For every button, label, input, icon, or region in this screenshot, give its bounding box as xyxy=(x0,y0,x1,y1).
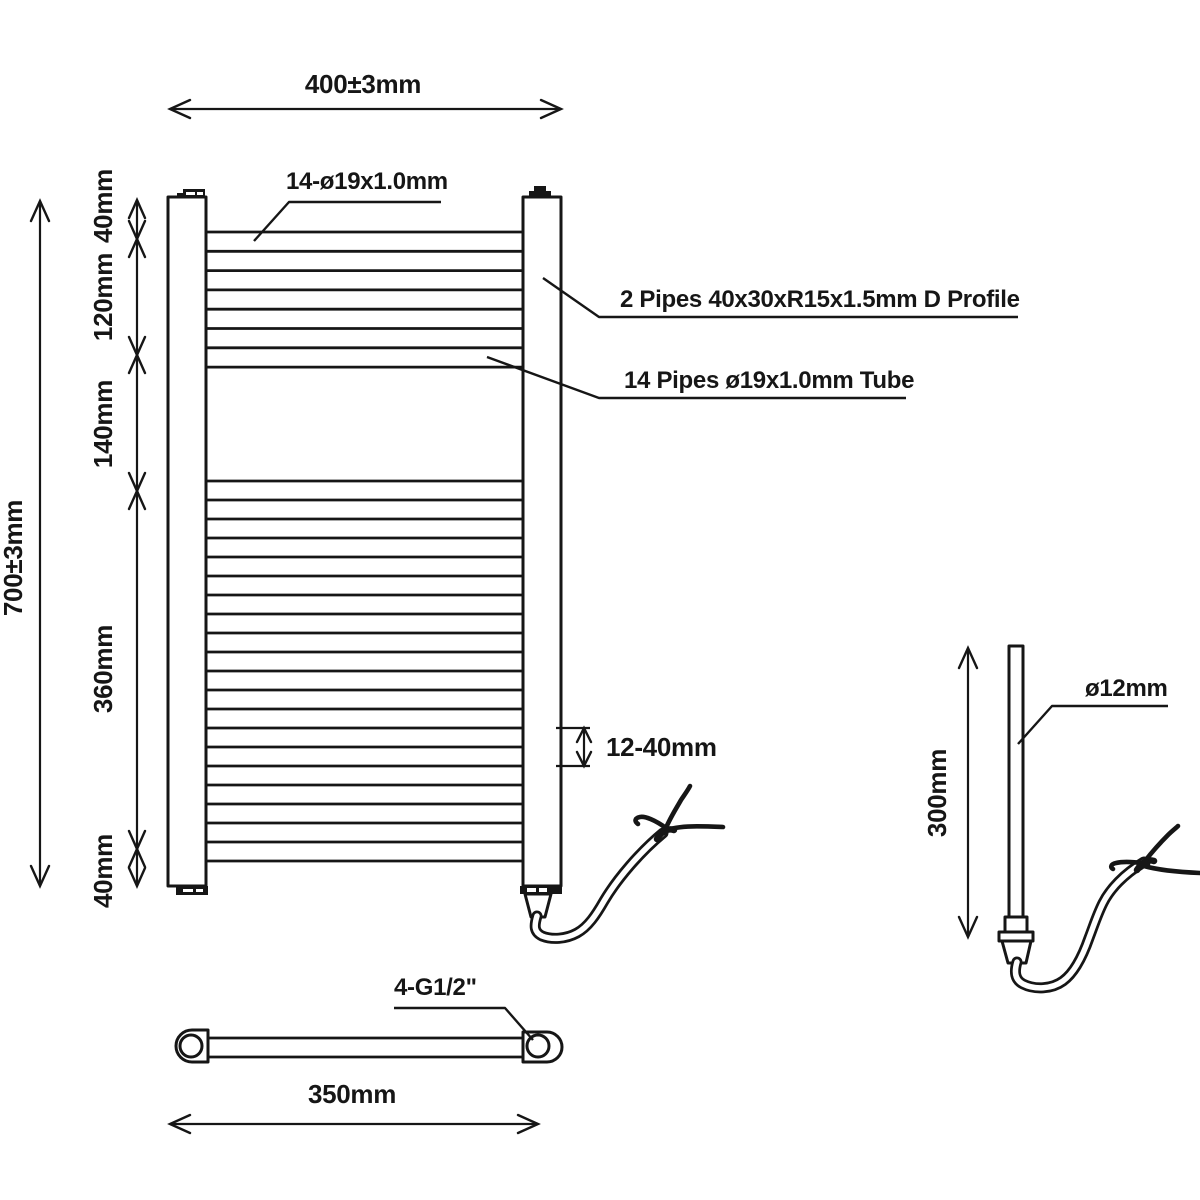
dim-segment-3: 140mm xyxy=(88,380,118,468)
bottom-view: 4-G1/2" 350mm xyxy=(170,974,562,1133)
element-cable xyxy=(1015,826,1200,988)
label-tube-text: 14 Pipes ø19x1.0mm Tube xyxy=(624,367,914,394)
left-post-bottom-cap xyxy=(176,886,208,895)
dim-segments: 40mm 120mm 140mm 360mm 40mm xyxy=(88,169,145,908)
label-threads-text: 4-G1/2" xyxy=(394,974,477,1001)
element-neck xyxy=(1005,917,1027,932)
front-view: 400±3mm 700±3mm 40mm 120mm 140mm 360mm 4… xyxy=(0,69,1020,938)
dim-pipe-gap-text: 12-40mm xyxy=(606,732,717,762)
dim-segment-2: 120mm xyxy=(88,253,118,341)
dim-segment-1: 40mm xyxy=(88,169,118,243)
dim-segment-5: 40mm xyxy=(88,834,118,908)
pipe-lines xyxy=(206,232,523,861)
label-d-profile: 2 Pipes 40x30xR15x1.5mm D Profile xyxy=(543,278,1020,317)
dim-element-length-text: 300mm xyxy=(922,749,952,837)
dim-element-length: 300mm xyxy=(922,648,977,937)
left-post-top-cap xyxy=(177,189,205,197)
right-post xyxy=(523,197,561,886)
stripped-wire-end xyxy=(636,786,723,839)
element-stripped-wire-end xyxy=(1111,826,1200,873)
dim-pipe-gap: 12-40mm xyxy=(556,728,717,766)
label-element-diameter-text: ø12mm xyxy=(1085,675,1168,702)
left-thread-hole xyxy=(180,1035,202,1057)
technical-drawing-page: 400±3mm 700±3mm 40mm 120mm 140mm 360mm 4… xyxy=(0,0,1200,1200)
label-top-pipes-text: 14-ø19x1.0mm xyxy=(286,168,448,195)
dim-height-text: 700±3mm xyxy=(0,500,28,616)
technical-drawing: 400±3mm 700±3mm 40mm 120mm 140mm 360mm 4… xyxy=(0,0,1200,1200)
dim-height: 700±3mm xyxy=(0,201,49,886)
dim-centers-text: 350mm xyxy=(308,1079,396,1109)
dim-centers: 350mm xyxy=(170,1079,538,1133)
dim-width-text: 400±3mm xyxy=(305,69,421,99)
power-cable xyxy=(535,786,723,938)
dim-segment-4: 360mm xyxy=(88,625,118,713)
label-d-profile-text: 2 Pipes 40x30xR15x1.5mm D Profile xyxy=(620,286,1020,313)
label-element-diameter: ø12mm xyxy=(1018,675,1168,744)
dim-width: 400±3mm xyxy=(170,69,561,118)
label-threads: 4-G1/2" xyxy=(394,974,533,1040)
left-post xyxy=(168,197,206,886)
right-post-vent-cap xyxy=(529,186,551,198)
element-detail: 300mm ø12mm xyxy=(922,646,1200,988)
label-top-pipes: 14-ø19x1.0mm xyxy=(254,168,448,241)
element-rod xyxy=(1009,646,1023,917)
